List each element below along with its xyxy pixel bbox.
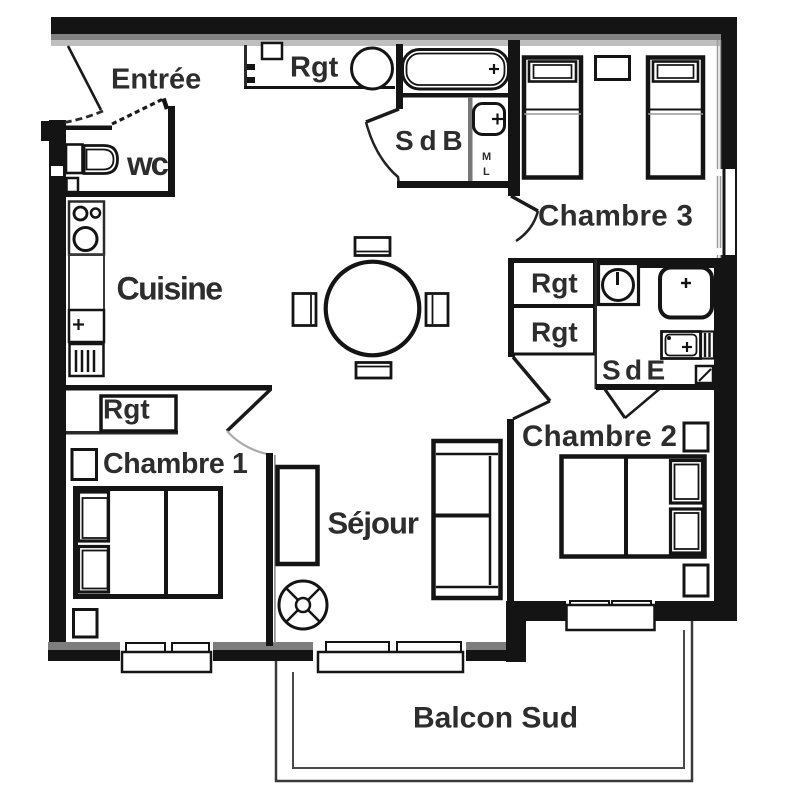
svg-text:Balcon Sud: Balcon Sud bbox=[413, 702, 578, 735]
svg-text:Rgt: Rgt bbox=[531, 317, 578, 348]
svg-text:S d B: S d B bbox=[395, 125, 462, 156]
svg-text:Séjour: Séjour bbox=[328, 506, 419, 541]
svg-text:Rgt: Rgt bbox=[290, 52, 339, 84]
svg-text:Chambre 3: Chambre 3 bbox=[538, 200, 693, 233]
svg-text:M: M bbox=[482, 151, 491, 163]
svg-text:Rgt: Rgt bbox=[103, 394, 150, 425]
svg-text:Chambre 1: Chambre 1 bbox=[103, 448, 248, 480]
svg-text:Entrée: Entrée bbox=[111, 64, 201, 96]
svg-text:Rgt: Rgt bbox=[531, 268, 578, 299]
svg-text:S d E: S d E bbox=[602, 355, 665, 386]
svg-text:Cuisine: Cuisine bbox=[117, 271, 223, 307]
svg-text:wc: wc bbox=[126, 145, 169, 182]
svg-text:L: L bbox=[483, 166, 490, 178]
svg-text:Chambre 2: Chambre 2 bbox=[522, 420, 677, 453]
